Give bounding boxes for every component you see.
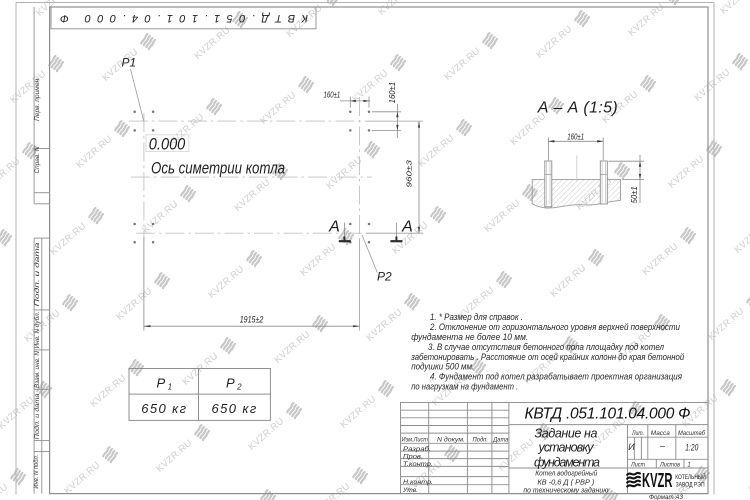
svg-text:KVZR.RU: KVZR.RU <box>298 242 338 279</box>
svg-text:KVZR.RU: KVZR.RU <box>206 264 246 301</box>
svg-text:Взам. инв. N: Взам. инв. N <box>34 351 41 388</box>
svg-text:Листов: Листов <box>659 462 680 468</box>
svg-text:KVZR.RU: KVZR.RU <box>232 177 272 214</box>
svg-text:4. Фундамент под котел разраба: 4. Фундамент под котел разрабатывает про… <box>430 372 682 382</box>
svg-text:подушки 500 мм.: подушки 500 мм. <box>411 362 474 372</box>
svg-text:KVZR.RU: KVZR.RU <box>718 0 750 17</box>
svg-text:KVZR.RU: KVZR.RU <box>272 329 312 366</box>
svg-text:установку: установку <box>538 441 595 455</box>
svg-text:KVZR.RU: KVZR.RU <box>746 458 750 495</box>
svg-text:P1: P1 <box>122 56 137 70</box>
svg-text:160±1: 160±1 <box>567 131 584 141</box>
svg-text:160±1: 160±1 <box>388 82 397 104</box>
svg-text:1:20: 1:20 <box>685 443 698 453</box>
svg-text:Инв. N подл.: Инв. N подл. <box>32 454 40 488</box>
svg-text:KVZR.RU: KVZR.RU <box>8 69 48 106</box>
svg-text:фундамента не более 10 мм.: фундамента не более 10 мм. <box>411 332 528 342</box>
svg-text:Котел водогрейный: Котел водогрейный <box>535 469 597 477</box>
svg-text:KVZR.RU: KVZR.RU <box>442 46 482 83</box>
svg-text:забетонировать . Расстояние от: забетонировать . Расстояние от осей край… <box>410 352 684 362</box>
svg-text:Лит.: Лит. <box>631 431 644 437</box>
svg-text:160±1: 160±1 <box>324 91 341 100</box>
svg-text:Лист: Лист <box>630 462 645 468</box>
svg-text:KVZR.RU: KVZR.RU <box>416 133 456 170</box>
svg-text:KVZR.RU: KVZR.RU <box>0 156 23 193</box>
svg-text:KVZR.RU: KVZR.RU <box>88 373 128 410</box>
svg-text:3. В случае отсутствия бетонно: 3. В случае отсутствия бетонного пола пл… <box>428 342 664 352</box>
svg-text:KVZR.RU: KVZR.RU <box>732 219 750 256</box>
svg-text:KVZR.RU: KVZR.RU <box>74 134 114 171</box>
svg-text:KVZR.RU: KVZR.RU <box>180 351 220 388</box>
svg-text:N докум.: N докум. <box>437 436 465 444</box>
svg-text:A: A <box>401 218 413 235</box>
svg-text:P1: P1 <box>157 376 173 392</box>
svg-text:КОТЕЛЬНЫЙ: КОТЕЛЬНЫЙ <box>675 473 706 481</box>
svg-text:Подп. и дата: Подп. и дата <box>33 393 41 439</box>
svg-text:КВ -0,6 Д ( РВР ): КВ -0,6 Д ( РВР ) <box>537 480 594 487</box>
svg-text:A: A <box>328 218 340 235</box>
svg-text:KVZR.RU: KVZR.RU <box>324 155 364 192</box>
svg-text:KVZR.RU: KVZR.RU <box>312 481 352 500</box>
svg-text:KVZR.RU: KVZR.RU <box>0 395 37 432</box>
svg-text:Подп. и дата: Подп. и дата <box>33 242 41 307</box>
svg-text:KVZR.RU: KVZR.RU <box>192 25 232 62</box>
svg-text:Подп.: Подп. <box>473 436 489 444</box>
svg-text:Н.контр.: Н.контр. <box>403 479 433 486</box>
svg-text:KVZR.RU: KVZR.RU <box>548 263 588 300</box>
svg-text:Масса: Масса <box>651 431 671 437</box>
svg-text:650 кг: 650 кг <box>141 401 186 416</box>
svg-text:KVZR.RU: KVZR.RU <box>706 306 746 343</box>
svg-text:KVZR.RU: KVZR.RU <box>114 286 154 323</box>
svg-text:Дата: Дата <box>492 437 508 444</box>
svg-text:А – А (1:5): А – А (1:5) <box>537 100 618 117</box>
svg-text:Ось симетрии котла: Ось симетрии котла <box>151 158 285 177</box>
svg-text:по техническому заданию: по техническому заданию <box>523 487 609 495</box>
svg-text:KVZR.RU: KVZR.RU <box>666 154 706 191</box>
svg-text:KVZR.RU: KVZR.RU <box>154 438 194 475</box>
svg-text:Перв. примен.: Перв. примен. <box>34 77 41 121</box>
svg-text:Инв. N дубл.: Инв. N дубл. <box>33 311 41 348</box>
svg-text:KVZR.RU: KVZR.RU <box>246 416 286 453</box>
svg-text:1: 1 <box>687 462 690 468</box>
svg-text:KVZR.RU: KVZR.RU <box>692 67 732 104</box>
svg-text:Разраб.: Разраб. <box>403 445 431 453</box>
svg-text:Пров.: Пров. <box>403 453 423 460</box>
svg-text:P2: P2 <box>226 376 242 392</box>
svg-text:KVZR.RU: KVZR.RU <box>364 307 404 344</box>
svg-text:Утв.: Утв. <box>402 487 418 494</box>
svg-text:KVZR.RU: KVZR.RU <box>62 460 102 497</box>
svg-text:КВТД .051.101.04.000 Ф: КВТД .051.101.04.000 Ф <box>525 405 691 422</box>
svg-text:фундамента: фундамента <box>534 455 600 469</box>
svg-text:KVZR.RU: KVZR.RU <box>0 482 11 500</box>
svg-text:0.000: 0.000 <box>149 136 186 154</box>
svg-text:КВТД.051.101.04.000 Ф: КВТД.051.101.04.000 Ф <box>60 12 308 24</box>
svg-text:KVZR.RU: KVZR.RU <box>350 68 390 105</box>
svg-text:Масштаб: Масштаб <box>678 431 706 437</box>
svg-text:2. Отклонение от горизонтально: 2. Отклонение от горизонтального уровня … <box>429 322 680 332</box>
svg-text:KVZR.RU: KVZR.RU <box>640 241 680 278</box>
svg-text:P2: P2 <box>377 269 392 283</box>
svg-text:по нагрузкам на фундамент .: по нагрузкам на фундамент . <box>411 382 518 392</box>
svg-text:Изм.Лист: Изм.Лист <box>402 437 429 444</box>
svg-text:Справ. N: Справ. N <box>34 146 41 173</box>
svg-text:960±3: 960±3 <box>405 159 414 188</box>
svg-text:KVZR: KVZR <box>642 469 673 492</box>
svg-text:ЗАВОД РЭП: ЗАВОД РЭП <box>676 482 705 488</box>
svg-text:Формат А3: Формат А3 <box>649 494 683 500</box>
svg-text:1. * Размер для справок .: 1. * Размер для справок . <box>430 312 523 322</box>
svg-text:KVZR.RU: KVZR.RU <box>22 308 62 345</box>
svg-text:И: И <box>628 442 635 452</box>
svg-text:–: – <box>659 441 666 451</box>
svg-text:1915±2: 1915±2 <box>240 315 264 326</box>
svg-text:KVZR.RU: KVZR.RU <box>338 394 378 431</box>
svg-text:650 кг: 650 кг <box>212 401 257 416</box>
svg-text:Задание на: Задание на <box>535 427 598 441</box>
svg-text:KVZR.RU: KVZR.RU <box>140 199 180 236</box>
svg-text:Т.контр.: Т.контр. <box>403 461 433 468</box>
svg-text:KVZR.RU: KVZR.RU <box>48 221 88 258</box>
svg-text:50±1: 50±1 <box>629 186 639 203</box>
svg-text:KVZR.RU: KVZR.RU <box>534 24 574 61</box>
svg-text:KVZR.RU: KVZR.RU <box>482 198 522 235</box>
